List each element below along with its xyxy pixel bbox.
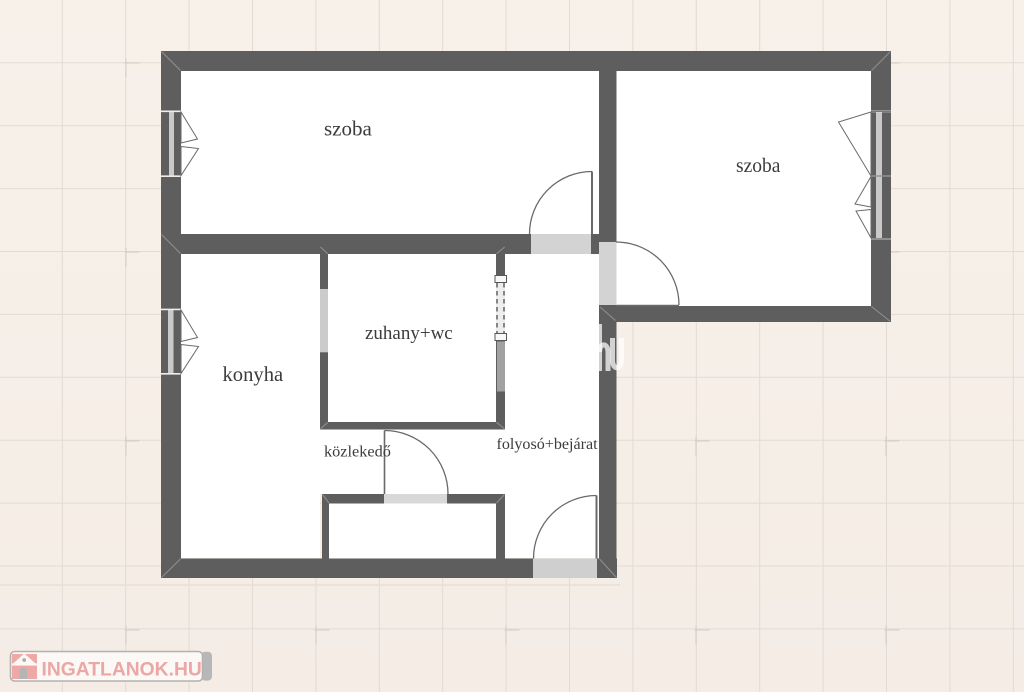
svg-text:szoba: szoba — [324, 117, 372, 141]
svg-text:konyha: konyha — [223, 364, 284, 386]
svg-text:zuhany+wc: zuhany+wc — [365, 323, 453, 344]
svg-text:közlekedő: közlekedő — [324, 442, 391, 461]
svg-text:szoba: szoba — [736, 156, 781, 177]
svg-text:INGATLANOK.HU: INGATLANOK.HU — [42, 659, 202, 680]
svg-text:folyosó+bejárat: folyosó+bejárat — [497, 436, 599, 453]
